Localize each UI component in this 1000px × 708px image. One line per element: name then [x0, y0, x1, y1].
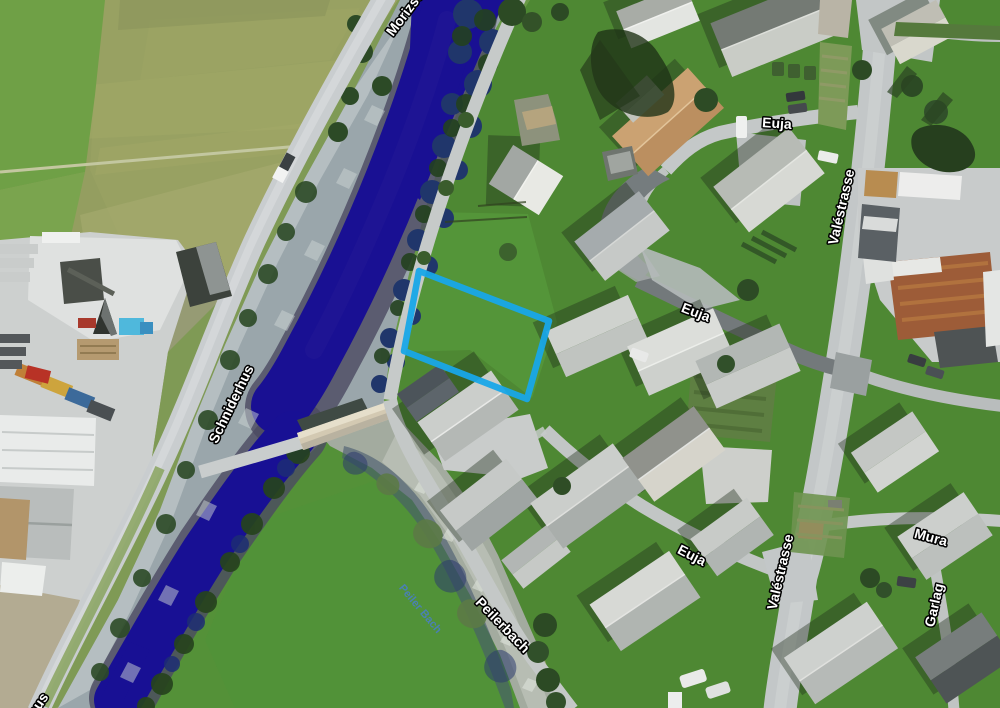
svg-text:Euja: Euja	[762, 114, 793, 132]
